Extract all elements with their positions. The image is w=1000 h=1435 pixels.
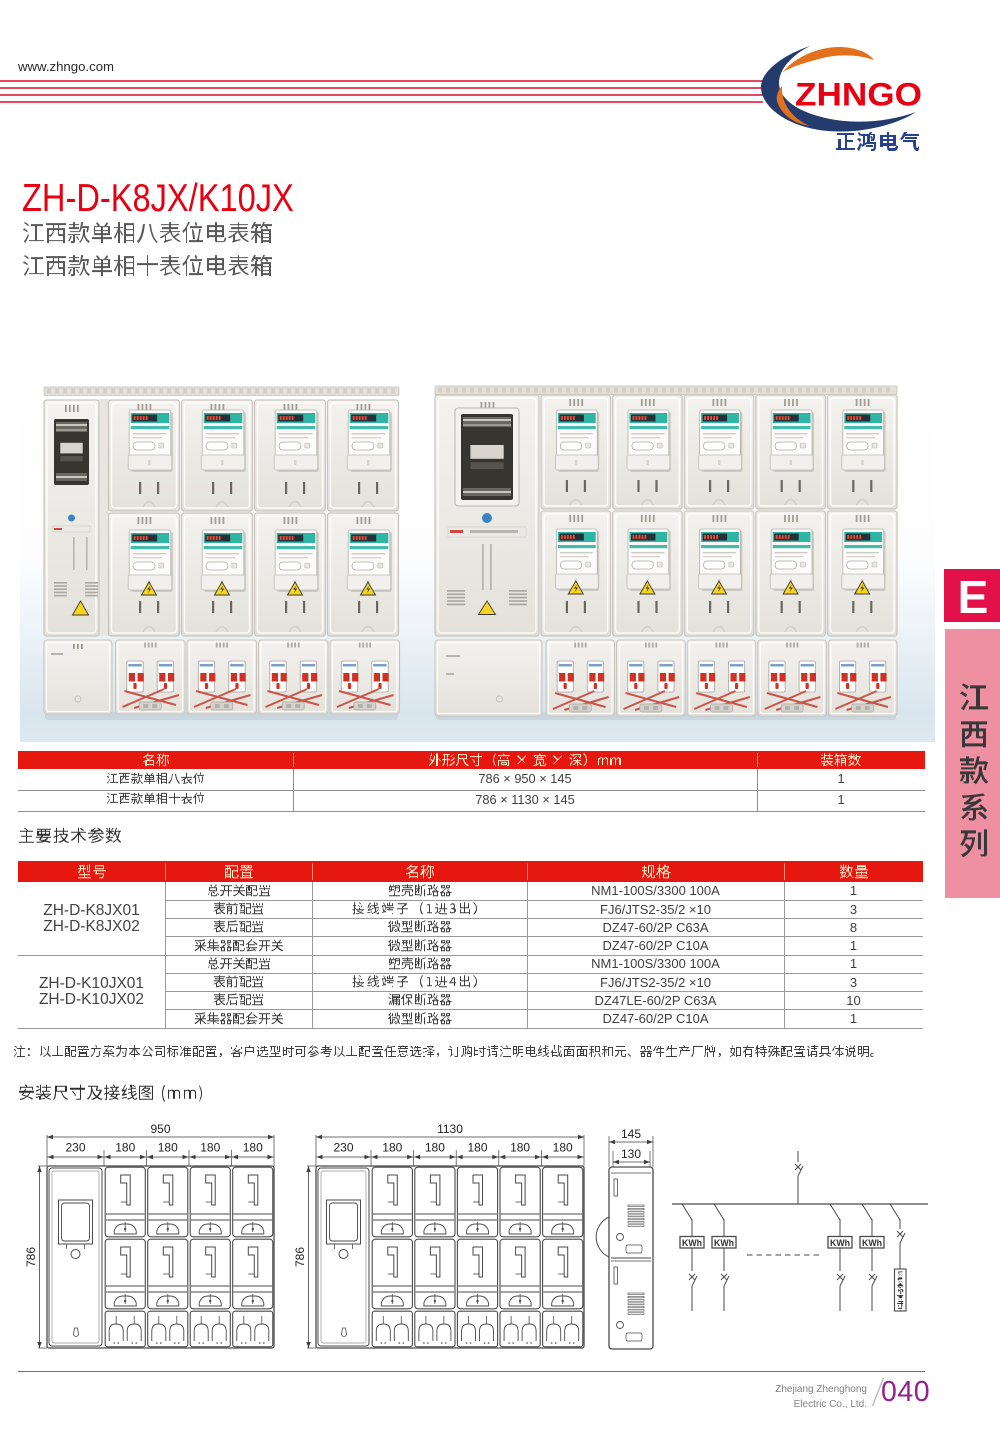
svg-text:145: 145 xyxy=(621,1127,641,1141)
svg-text:180: 180 xyxy=(115,1141,135,1155)
svg-text:180: 180 xyxy=(382,1141,402,1155)
svg-text:1130: 1130 xyxy=(437,1122,463,1136)
svg-text:180: 180 xyxy=(510,1141,530,1155)
svg-text:786: 786 xyxy=(293,1247,307,1267)
svg-text:180: 180 xyxy=(425,1141,445,1155)
svg-text:ZHNGO: ZHNGO xyxy=(795,77,922,113)
svg-text:KWh: KWh xyxy=(682,1238,702,1248)
svg-text:230: 230 xyxy=(65,1141,85,1155)
svg-text:180: 180 xyxy=(200,1141,220,1155)
svg-text:230: 230 xyxy=(333,1141,353,1155)
svg-text:180: 180 xyxy=(467,1141,487,1155)
svg-text:180: 180 xyxy=(158,1141,178,1155)
svg-text:KWh: KWh xyxy=(862,1238,882,1248)
svg-text:180: 180 xyxy=(243,1141,263,1155)
svg-text:KWh: KWh xyxy=(830,1238,850,1248)
svg-text:950: 950 xyxy=(150,1122,170,1136)
svg-text:KWh: KWh xyxy=(714,1238,734,1248)
svg-text:786: 786 xyxy=(24,1247,38,1267)
svg-text:130: 130 xyxy=(621,1147,641,1161)
svg-text:180: 180 xyxy=(553,1141,573,1155)
